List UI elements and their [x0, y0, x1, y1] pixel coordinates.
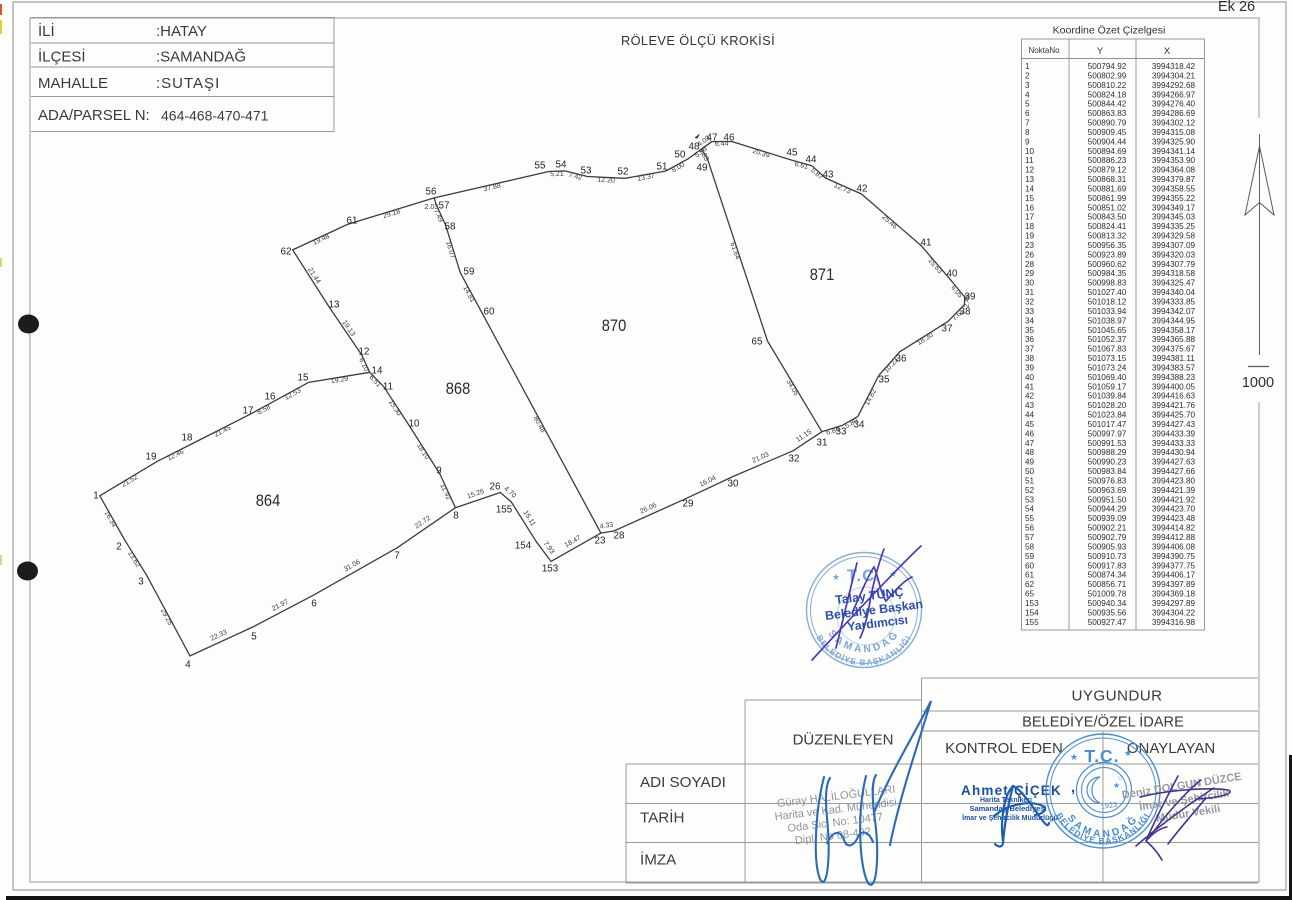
svg-text:58: 58 — [1025, 542, 1035, 551]
svg-text:864: 864 — [256, 491, 281, 510]
svg-text:1000: 1000 — [1242, 375, 1274, 391]
svg-text:48: 48 — [689, 142, 700, 153]
svg-text:6: 6 — [1025, 109, 1030, 118]
svg-text:3994388.23: 3994388.23 — [1152, 373, 1196, 382]
svg-text:500910.73: 500910.73 — [1088, 552, 1127, 561]
svg-text:500879.12: 500879.12 — [1088, 166, 1127, 175]
svg-text:60: 60 — [1025, 561, 1035, 570]
svg-text:501009.78: 501009.78 — [1088, 590, 1127, 599]
svg-text:154: 154 — [515, 541, 532, 552]
svg-text:501045.65: 501045.65 — [1088, 326, 1127, 335]
svg-text:3994430.94: 3994430.94 — [1152, 448, 1196, 457]
svg-text:3994329.58: 3994329.58 — [1152, 232, 1196, 241]
svg-text:47: 47 — [1025, 439, 1035, 448]
svg-text:49: 49 — [1025, 458, 1035, 467]
svg-text:3: 3 — [1025, 81, 1030, 90]
svg-text:23: 23 — [1025, 241, 1035, 250]
svg-text:KONTROL EDEN: KONTROL EDEN — [945, 740, 1063, 757]
svg-text:1: 1 — [1025, 62, 1030, 71]
svg-text:36: 36 — [896, 354, 907, 365]
svg-text:17: 17 — [1025, 213, 1035, 222]
svg-text:16: 16 — [265, 392, 276, 403]
svg-text::SAMANDAĞ: :SAMANDAĞ — [156, 49, 246, 66]
svg-text:3994427.63: 3994427.63 — [1152, 458, 1196, 467]
svg-text:65: 65 — [1025, 590, 1035, 599]
svg-text:501059.17: 501059.17 — [1088, 382, 1127, 391]
svg-text:NoktaNo: NoktaNo — [1028, 46, 1060, 55]
svg-text:İLÇESİ: İLÇESİ — [38, 48, 86, 66]
svg-text:14: 14 — [1025, 185, 1035, 194]
svg-text:13: 13 — [1025, 175, 1035, 184]
svg-text:33: 33 — [836, 427, 847, 438]
svg-text:3994421.76: 3994421.76 — [1152, 401, 1196, 410]
svg-text:38: 38 — [960, 307, 971, 318]
svg-text:62: 62 — [281, 247, 292, 258]
svg-text:500976.83: 500976.83 — [1088, 477, 1127, 486]
svg-text:18: 18 — [1025, 222, 1035, 231]
svg-text:153: 153 — [542, 564, 559, 575]
svg-text:154: 154 — [1025, 608, 1039, 617]
svg-text:7: 7 — [1025, 119, 1030, 128]
svg-text:3994390.75: 3994390.75 — [1152, 552, 1196, 561]
svg-text:3994325.47: 3994325.47 — [1152, 279, 1196, 288]
svg-text:59: 59 — [1025, 552, 1035, 561]
svg-text:★: ★ — [1070, 752, 1078, 762]
svg-text:9: 9 — [436, 466, 441, 477]
svg-text:29: 29 — [683, 499, 694, 510]
svg-text:500861.99: 500861.99 — [1088, 194, 1127, 203]
svg-text:10: 10 — [1025, 147, 1035, 156]
svg-text:47: 47 — [707, 133, 718, 144]
svg-text:32: 32 — [789, 454, 800, 465]
svg-text:Ek 26: Ek 26 — [1218, 0, 1255, 15]
svg-text:31: 31 — [817, 438, 828, 449]
svg-text:59: 59 — [464, 267, 475, 278]
svg-text:501027.40: 501027.40 — [1088, 288, 1127, 297]
svg-text::HATAY: :HATAY — [156, 23, 207, 40]
svg-text:2: 2 — [116, 542, 121, 553]
svg-text:3994412.88: 3994412.88 — [1152, 533, 1196, 542]
svg-text:500824.41: 500824.41 — [1088, 222, 1127, 231]
svg-text:3994375.67: 3994375.67 — [1152, 345, 1196, 354]
svg-text:31: 31 — [1025, 288, 1035, 297]
svg-text:3994406.17: 3994406.17 — [1152, 571, 1196, 580]
svg-text:İMZA: İMZA — [640, 851, 677, 869]
svg-text:37: 37 — [942, 324, 953, 335]
svg-text:153: 153 — [1025, 599, 1039, 608]
svg-text:3994427.66: 3994427.66 — [1152, 467, 1196, 476]
svg-text:45: 45 — [787, 148, 798, 159]
svg-text::SUTAŞI: :SUTAŞI — [156, 75, 220, 92]
svg-text:501023.84: 501023.84 — [1088, 411, 1127, 420]
svg-text:17: 17 — [243, 406, 254, 417]
svg-text:18: 18 — [182, 433, 193, 444]
svg-text:Koordine Özet Çizelgesi: Koordine Özet Çizelgesi — [1053, 25, 1166, 37]
svg-text:23: 23 — [595, 536, 606, 547]
svg-text:30: 30 — [1025, 279, 1035, 288]
svg-text:58: 58 — [445, 222, 456, 233]
svg-text:3994304.21: 3994304.21 — [1152, 71, 1196, 80]
svg-text:500935.56: 500935.56 — [1088, 608, 1127, 617]
svg-text:3994406.08: 3994406.08 — [1152, 542, 1196, 551]
svg-text:3994355.22: 3994355.22 — [1152, 194, 1196, 203]
svg-text:500963.69: 500963.69 — [1088, 486, 1127, 495]
svg-text:500810.22: 500810.22 — [1088, 81, 1127, 90]
svg-text:3994397.89: 3994397.89 — [1152, 580, 1196, 589]
svg-text:İLİ: İLİ — [38, 22, 55, 40]
svg-text:RÖLEVE ÖLÇÜ KROKİSİ: RÖLEVE ÖLÇÜ KROKİSİ — [621, 33, 775, 48]
svg-text:3994276.40: 3994276.40 — [1152, 100, 1196, 109]
svg-text:3994369.18: 3994369.18 — [1152, 590, 1196, 599]
svg-text:34: 34 — [1025, 316, 1035, 325]
svg-text:500844.42: 500844.42 — [1088, 100, 1127, 109]
svg-text:X: X — [1164, 46, 1171, 57]
svg-text:37: 37 — [1025, 345, 1035, 354]
svg-text:3994358.55: 3994358.55 — [1152, 185, 1196, 194]
svg-text:19: 19 — [146, 452, 157, 463]
svg-text:500939.09: 500939.09 — [1088, 514, 1127, 523]
svg-text:3994377.75: 3994377.75 — [1152, 561, 1196, 570]
svg-text:50: 50 — [1025, 467, 1035, 476]
svg-text:500890.79: 500890.79 — [1088, 119, 1127, 128]
svg-text:500904.44: 500904.44 — [1088, 137, 1127, 146]
svg-text:3994425.70: 3994425.70 — [1152, 411, 1196, 420]
svg-text:28: 28 — [614, 531, 625, 542]
svg-text:41: 41 — [1025, 382, 1035, 391]
svg-text:51: 51 — [657, 162, 668, 173]
svg-text:3994433.39: 3994433.39 — [1152, 429, 1196, 438]
svg-text:501039.84: 501039.84 — [1088, 392, 1127, 401]
svg-text:501017.47: 501017.47 — [1088, 420, 1127, 429]
svg-text:3994342.07: 3994342.07 — [1152, 307, 1196, 316]
svg-text:3994341.14: 3994341.14 — [1152, 147, 1196, 156]
svg-text:61: 61 — [347, 216, 358, 227]
svg-text:501018.12: 501018.12 — [1088, 298, 1127, 307]
svg-text:870: 870 — [602, 316, 627, 335]
svg-text:3994364.08: 3994364.08 — [1152, 166, 1196, 175]
svg-text:868: 868 — [446, 379, 471, 398]
svg-text:500894.69: 500894.69 — [1088, 147, 1127, 156]
svg-text:500874.34: 500874.34 — [1088, 571, 1127, 580]
svg-text:MAHALLE: MAHALLE — [38, 75, 108, 92]
svg-text:3994427.43: 3994427.43 — [1152, 420, 1196, 429]
svg-text:52: 52 — [1025, 486, 1035, 495]
svg-text:3994318.58: 3994318.58 — [1152, 269, 1196, 278]
svg-text:3994344.95: 3994344.95 — [1152, 316, 1196, 325]
svg-text:3994421.39: 3994421.39 — [1152, 486, 1196, 495]
svg-text:16: 16 — [1025, 203, 1035, 212]
svg-text:53: 53 — [1025, 495, 1035, 504]
svg-text:3994304.22: 3994304.22 — [1152, 608, 1196, 617]
svg-text:500998.83: 500998.83 — [1088, 279, 1127, 288]
svg-text:11: 11 — [383, 382, 393, 393]
svg-text:500940.34: 500940.34 — [1088, 599, 1127, 608]
svg-text:44: 44 — [1025, 411, 1035, 420]
svg-text:3994297.89: 3994297.89 — [1152, 599, 1196, 608]
svg-text:3994365.88: 3994365.88 — [1152, 335, 1196, 344]
svg-text:4: 4 — [1025, 90, 1030, 99]
svg-text:12: 12 — [359, 347, 370, 358]
svg-text:54: 54 — [1025, 505, 1035, 514]
svg-text:3994292.68: 3994292.68 — [1152, 81, 1196, 90]
svg-text:12: 12 — [1025, 166, 1035, 175]
svg-text:34: 34 — [854, 420, 865, 431]
svg-text:43: 43 — [1025, 401, 1035, 410]
svg-text:39: 39 — [1025, 363, 1035, 372]
svg-text:53: 53 — [581, 166, 592, 177]
svg-text:44: 44 — [806, 155, 817, 166]
svg-text:3994383.57: 3994383.57 — [1152, 363, 1196, 372]
svg-text:500984.35: 500984.35 — [1088, 269, 1127, 278]
svg-text:65: 65 — [752, 337, 763, 348]
svg-text:2: 2 — [1025, 71, 1030, 80]
svg-text:57: 57 — [439, 201, 450, 212]
svg-text:3994307.79: 3994307.79 — [1152, 260, 1196, 269]
svg-text:33: 33 — [1025, 307, 1035, 316]
svg-text:500802.99: 500802.99 — [1088, 71, 1127, 80]
svg-text:3994358.17: 3994358.17 — [1152, 326, 1196, 335]
svg-text:BELEDİYE/ÖZEL İDARE: BELEDİYE/ÖZEL İDARE — [1022, 713, 1184, 731]
svg-text:26: 26 — [490, 482, 501, 493]
svg-text:36: 36 — [1025, 335, 1035, 344]
svg-text:54: 54 — [556, 160, 567, 171]
svg-text:3994414.82: 3994414.82 — [1152, 524, 1196, 533]
svg-text:43: 43 — [823, 170, 834, 181]
svg-text:60: 60 — [484, 307, 495, 318]
svg-text:501069.40: 501069.40 — [1088, 373, 1127, 382]
svg-text:T.C.: T.C. — [1084, 746, 1119, 766]
svg-text:40: 40 — [1025, 373, 1035, 382]
svg-text:500886.23: 500886.23 — [1088, 156, 1127, 165]
svg-text:500960.62: 500960.62 — [1088, 260, 1127, 269]
svg-text:6: 6 — [311, 599, 317, 610]
svg-text:42: 42 — [1025, 392, 1035, 401]
svg-text:☆: ☆ — [1117, 774, 1123, 782]
svg-text:3994433.33: 3994433.33 — [1152, 439, 1196, 448]
svg-text:57: 57 — [1025, 533, 1035, 542]
svg-text:3994315.08: 3994315.08 — [1152, 128, 1196, 137]
svg-text:500991.53: 500991.53 — [1088, 439, 1127, 448]
svg-text:3994318.42: 3994318.42 — [1152, 62, 1196, 71]
svg-text:3994423.80: 3994423.80 — [1152, 477, 1196, 486]
svg-text:500997.97: 500997.97 — [1088, 429, 1127, 438]
svg-text:38: 38 — [1025, 354, 1035, 363]
svg-text:3994333.85: 3994333.85 — [1152, 298, 1196, 307]
svg-text:55: 55 — [1025, 514, 1035, 523]
svg-text:42: 42 — [857, 184, 868, 195]
svg-text:12.20: 12.20 — [597, 177, 615, 185]
svg-text:UYGUNDUR: UYGUNDUR — [1072, 688, 1163, 705]
svg-text:11: 11 — [1025, 156, 1034, 165]
svg-text:40: 40 — [947, 269, 958, 280]
svg-text:15: 15 — [298, 373, 309, 384]
svg-text:3994423.48: 3994423.48 — [1152, 514, 1196, 523]
svg-text:464-468-470-471: 464-468-470-471 — [161, 108, 269, 124]
svg-text:3994316.98: 3994316.98 — [1152, 618, 1196, 627]
svg-text:5: 5 — [1025, 100, 1030, 109]
svg-text:3: 3 — [138, 577, 144, 588]
svg-text:5: 5 — [251, 632, 257, 643]
svg-text:9: 9 — [1025, 137, 1030, 146]
svg-text:501028.20: 501028.20 — [1088, 401, 1127, 410]
svg-text:ADI SOYADI: ADI SOYADI — [640, 774, 726, 791]
svg-text:62: 62 — [1025, 580, 1035, 589]
svg-text:501038.97: 501038.97 — [1088, 316, 1127, 325]
svg-text:52: 52 — [618, 167, 629, 178]
svg-text:155: 155 — [1025, 618, 1039, 627]
svg-text:TARİH: TARİH — [640, 809, 684, 827]
svg-text:1: 1 — [93, 491, 98, 502]
svg-text:56: 56 — [1025, 524, 1035, 533]
svg-text:ADA/PARSEL N:: ADA/PARSEL N: — [38, 107, 150, 124]
svg-text:30: 30 — [728, 479, 739, 490]
svg-text:5.21: 5.21 — [550, 171, 564, 179]
svg-text:3994335.25: 3994335.25 — [1152, 222, 1196, 231]
svg-text:7: 7 — [394, 551, 399, 562]
svg-text:50: 50 — [675, 150, 686, 161]
svg-text:49: 49 — [697, 163, 708, 174]
svg-text:51: 51 — [1025, 477, 1035, 486]
svg-text:500944.29: 500944.29 — [1088, 505, 1127, 514]
svg-text:10: 10 — [409, 419, 420, 430]
svg-text:3994423.70: 3994423.70 — [1152, 505, 1196, 514]
svg-text:500856.71: 500856.71 — [1088, 580, 1127, 589]
svg-text:DÜZENLEYEN: DÜZENLEYEN — [793, 731, 894, 749]
svg-text:500990.23: 500990.23 — [1088, 458, 1127, 467]
svg-text:501033.94: 501033.94 — [1088, 307, 1127, 316]
svg-text:46: 46 — [724, 133, 735, 144]
svg-text:3994302.12: 3994302.12 — [1152, 119, 1196, 128]
svg-text:3994340.04: 3994340.04 — [1152, 288, 1196, 297]
svg-text:55: 55 — [535, 161, 546, 172]
svg-text:8: 8 — [453, 511, 459, 522]
svg-text:500813.32: 500813.32 — [1088, 232, 1127, 241]
svg-text:45: 45 — [1025, 420, 1035, 429]
svg-text:35: 35 — [879, 375, 890, 386]
svg-text:14: 14 — [372, 366, 383, 377]
svg-text:35: 35 — [1025, 326, 1035, 335]
svg-text:500927.47: 500927.47 — [1088, 618, 1127, 627]
svg-text:19: 19 — [1025, 232, 1035, 241]
svg-text:3994381.11: 3994381.11 — [1152, 354, 1195, 363]
svg-text:501052.37: 501052.37 — [1088, 335, 1127, 344]
svg-text:4: 4 — [185, 660, 191, 671]
svg-text:28: 28 — [1025, 260, 1035, 269]
svg-text:29: 29 — [1025, 269, 1035, 278]
svg-text:8: 8 — [1025, 128, 1030, 137]
svg-text:500951.50: 500951.50 — [1088, 495, 1127, 504]
svg-text:3994400.05: 3994400.05 — [1152, 382, 1196, 391]
svg-text:★: ★ — [832, 572, 840, 582]
svg-text:3994349.17: 3994349.17 — [1152, 203, 1196, 212]
svg-text:500851.02: 500851.02 — [1088, 203, 1127, 212]
svg-text:500983.84: 500983.84 — [1088, 467, 1127, 476]
svg-text:3994320.03: 3994320.03 — [1152, 250, 1196, 259]
svg-text:500917.83: 500917.83 — [1088, 561, 1127, 570]
svg-text:48: 48 — [1025, 448, 1035, 457]
svg-text:56: 56 — [426, 187, 437, 198]
svg-text:500902.21: 500902.21 — [1088, 524, 1127, 533]
svg-text:Y: Y — [1097, 46, 1104, 57]
svg-text:3994421.92: 3994421.92 — [1152, 495, 1196, 504]
svg-text:871: 871 — [810, 265, 835, 284]
svg-text:500923.89: 500923.89 — [1088, 250, 1127, 259]
svg-text:3994325.90: 3994325.90 — [1152, 137, 1196, 146]
svg-text:501073.24: 501073.24 — [1088, 363, 1127, 372]
svg-text:13: 13 — [329, 300, 340, 311]
svg-text:3994286.69: 3994286.69 — [1152, 109, 1196, 118]
svg-text:3994266.97: 3994266.97 — [1152, 90, 1196, 99]
svg-text:3994353.90: 3994353.90 — [1152, 156, 1196, 165]
svg-text:3994379.87: 3994379.87 — [1152, 175, 1196, 184]
svg-text:3994307.09: 3994307.09 — [1152, 241, 1196, 250]
svg-text:501073.15: 501073.15 — [1088, 354, 1127, 363]
svg-text:500881.69: 500881.69 — [1088, 185, 1127, 194]
svg-text:3994345.03: 3994345.03 — [1152, 213, 1196, 222]
svg-text:500868.31: 500868.31 — [1088, 175, 1127, 184]
svg-text:41: 41 — [921, 238, 932, 249]
svg-text:500902.79: 500902.79 — [1088, 533, 1127, 542]
svg-text:32: 32 — [1025, 298, 1035, 307]
svg-text:46: 46 — [1025, 429, 1035, 438]
svg-text:500843.50: 500843.50 — [1088, 213, 1127, 222]
svg-text:500905.93: 500905.93 — [1088, 542, 1127, 551]
svg-text:,: , — [1071, 779, 1075, 796]
svg-text:26: 26 — [1025, 250, 1035, 259]
svg-text:500794.92: 500794.92 — [1088, 62, 1127, 71]
svg-text:155: 155 — [496, 505, 513, 516]
svg-text:500863.83: 500863.83 — [1088, 109, 1127, 118]
svg-text:3994416.63: 3994416.63 — [1152, 392, 1196, 401]
svg-text:15: 15 — [1025, 194, 1035, 203]
svg-text:39: 39 — [965, 292, 976, 303]
svg-text:501067.83: 501067.83 — [1088, 345, 1127, 354]
svg-text:500988.29: 500988.29 — [1088, 448, 1127, 457]
svg-text:★: ★ — [1124, 748, 1132, 758]
svg-text:500824.18: 500824.18 — [1088, 90, 1127, 99]
svg-text:500909.45: 500909.45 — [1088, 128, 1127, 137]
svg-text:61: 61 — [1025, 571, 1035, 580]
svg-text:500956.35: 500956.35 — [1088, 241, 1127, 250]
svg-text:★: ★ — [1113, 781, 1120, 790]
